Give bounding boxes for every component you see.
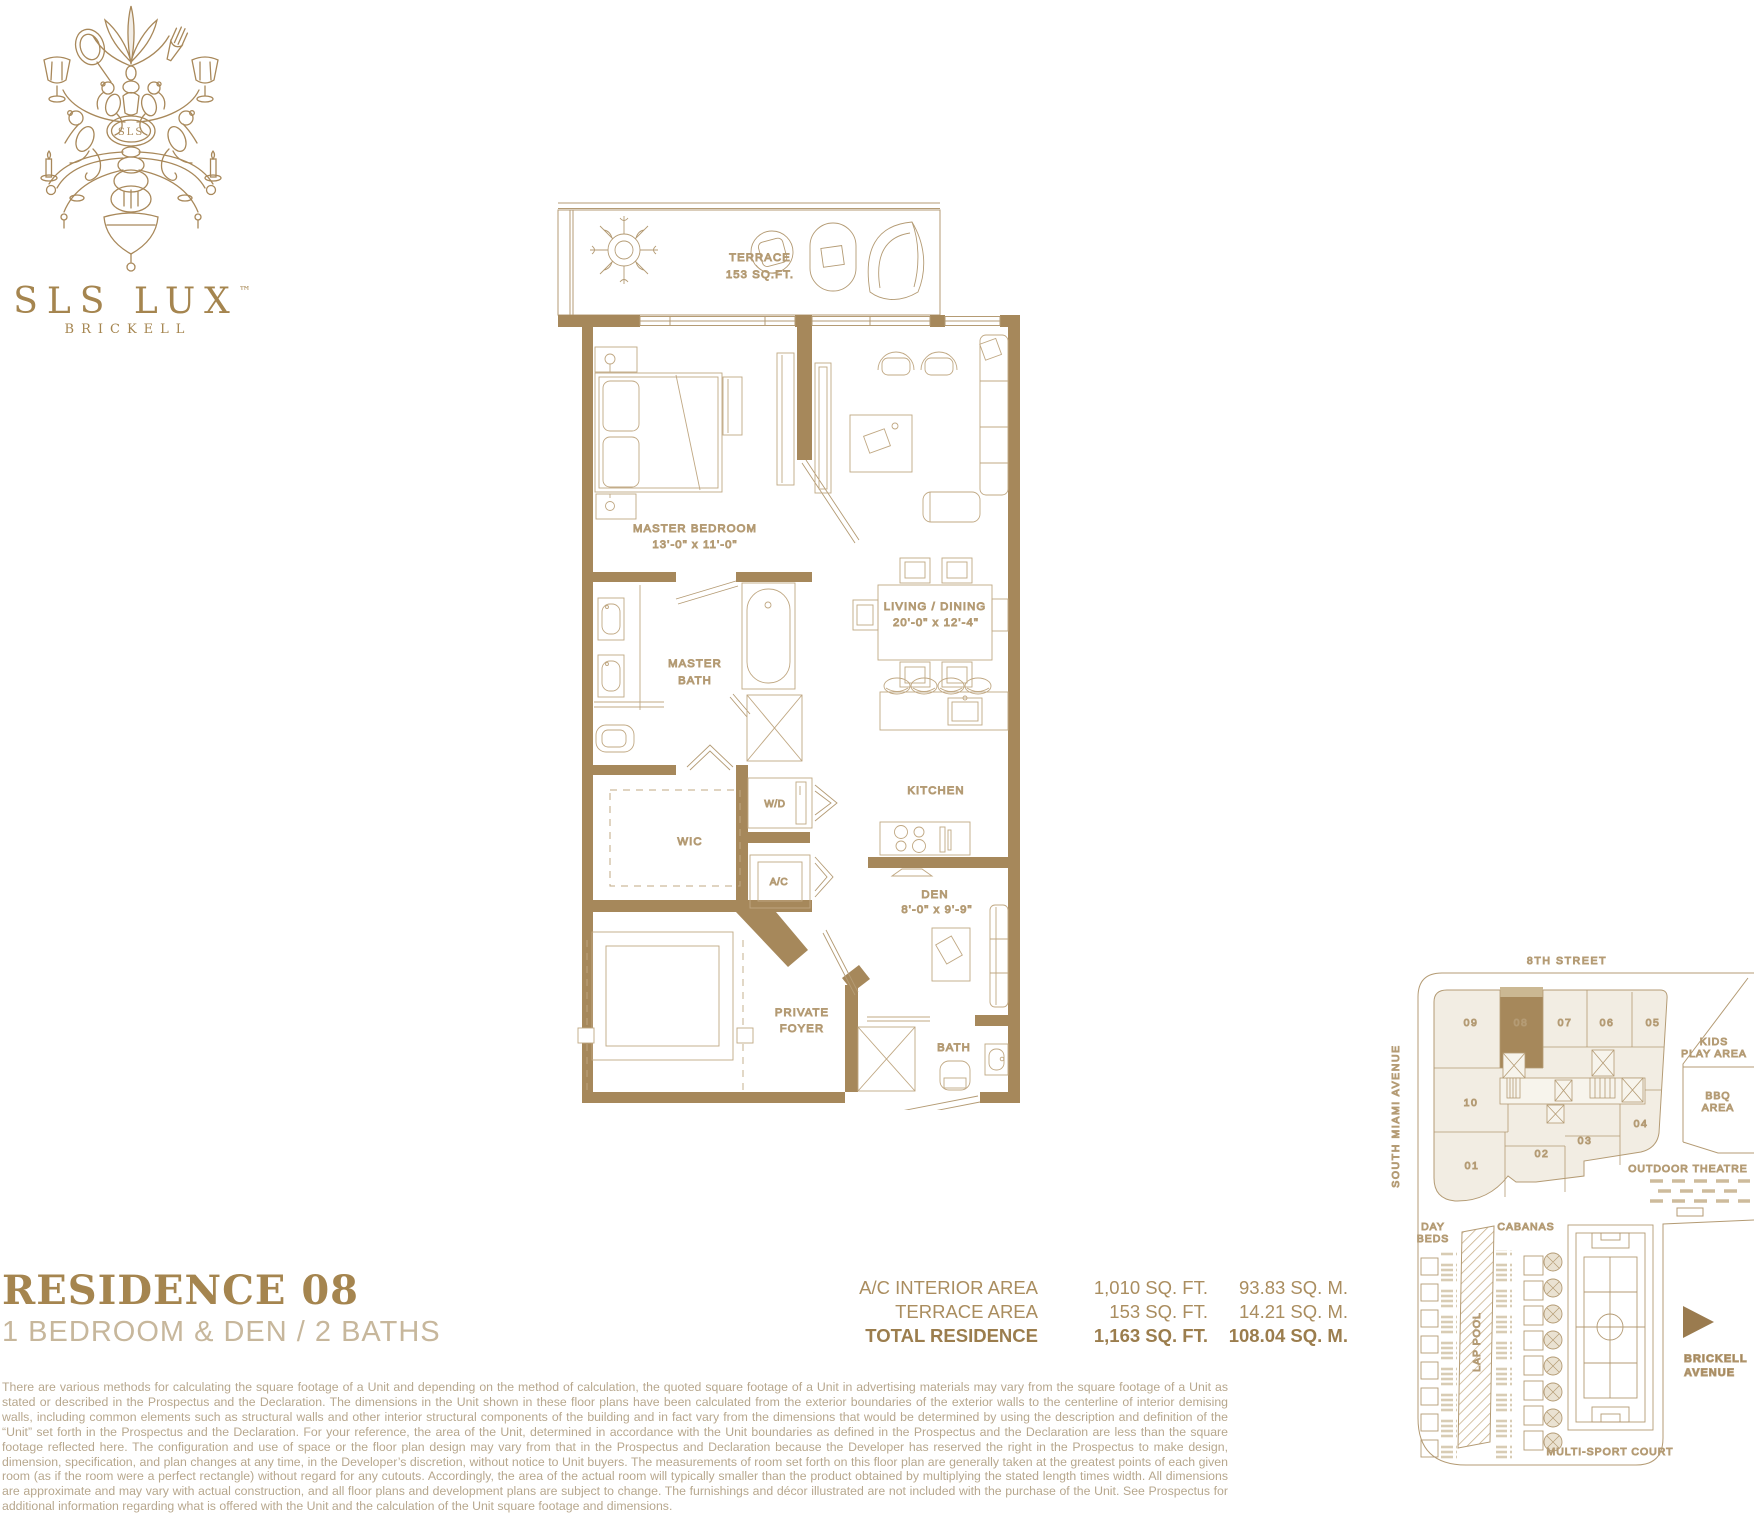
brand-wordmark: SLS LUX™ [6, 281, 258, 322]
living-dining-label: LIVING / DINING [884, 601, 987, 613]
day-beds-label2: BEDS [1417, 1233, 1450, 1245]
den-sofa-icon [990, 905, 1008, 1007]
terrace-medallion-icon [590, 216, 658, 284]
lap-pool: LAP POOL [1458, 1226, 1494, 1448]
dining-chair-icon [992, 599, 1008, 631]
outdoor-theatre-label: OUTDOOR THEATRE [1628, 1163, 1748, 1175]
windows [640, 317, 1000, 326]
key-plan-svg: 09 08 07 06 05 10 01 02 03 04 8TH STREET… [1240, 950, 1754, 1472]
master-bedroom-dims: 13'-0" x 11'-0" [652, 539, 737, 551]
den-furniture [932, 905, 1008, 1007]
bbq-label: BBQ [1705, 1090, 1730, 1102]
coffee-table-icon [850, 415, 912, 472]
residence-subtitle: 1 BEDROOM & DEN / 2 BATHS [2, 1318, 441, 1347]
residence-title: RESIDENCE 08 [2, 1271, 359, 1311]
logo-fork-icon [163, 25, 188, 62]
brand-city: BRICKELL [6, 322, 250, 337]
kids-play-label: KIDS [1700, 1036, 1729, 1048]
unit-label-10: 10 [1464, 1097, 1479, 1109]
arrow-right-icon [1683, 1306, 1714, 1338]
wd-label: W/D [764, 799, 785, 810]
wic-door-icon [687, 745, 733, 770]
ac-label: A/C [770, 877, 788, 888]
day-beds-icons [1421, 1252, 1457, 1460]
master-bath-label: MASTER [668, 658, 722, 670]
unit-label-04: 04 [1634, 1118, 1649, 1130]
cabana-stripes [1496, 1250, 1512, 1460]
living-dining-dims: 20'-0" x 12'-4" [893, 617, 979, 629]
unit-label-06: 06 [1600, 1017, 1615, 1029]
wd-door-icon [815, 785, 837, 821]
logo-stem [104, 66, 158, 271]
cabanas-label: CABANAS [1497, 1221, 1554, 1233]
terrace-table-icon [810, 223, 856, 291]
cabanas-icons [1496, 1250, 1562, 1460]
terrace-label: TERRACE [729, 252, 791, 264]
master-bath-fixtures [594, 583, 802, 761]
unit-label-01: 01 [1465, 1160, 1480, 1172]
area-total-sqft: 1,163 SQ. FT. [1038, 1326, 1208, 1350]
area-row-sqm: 14.21 SQ. M. [1208, 1302, 1348, 1326]
area-row-sqft: 153 SQ. FT. [1038, 1302, 1208, 1326]
page-root: { "colors": { "wall_gold": "#A6885B", "l… [0, 0, 1754, 1472]
ac-door-icon [815, 857, 833, 897]
private-foyer-label2: FOYER [780, 1023, 824, 1035]
kids-play-label2: PLAY AREA [1681, 1048, 1747, 1060]
area-row-sqft: 1,010 SQ. FT. [1038, 1278, 1208, 1302]
logo-mirror-icon [71, 26, 111, 82]
unit-label-03: 03 [1578, 1135, 1593, 1147]
area-row-label: A/C INTERIOR AREA [770, 1278, 1038, 1302]
terrace-area-label: 153 SQ.FT. [726, 269, 794, 281]
area-total-sqm: 108.04 SQ. M. [1208, 1326, 1348, 1350]
theatre-seating-icon [1650, 1181, 1750, 1201]
multi-sport-court-label: MULTI-SPORT COURT [1546, 1446, 1673, 1458]
toilet-icon [940, 1061, 970, 1090]
bath2-fixtures [858, 1017, 1008, 1091]
living-furniture [815, 335, 1008, 687]
kitchen-label: KITCHEN [907, 785, 964, 797]
brickell-label2: AVENUE [1684, 1367, 1735, 1379]
nightstand-icon [596, 494, 636, 519]
street-miami-label: SOUTH MIAMI AVENUE [1390, 1044, 1402, 1188]
lap-pool-label: LAP POOL [1471, 1312, 1483, 1372]
bedroom-door-icon [802, 460, 859, 543]
wardrobe-icon [777, 353, 794, 485]
walls [558, 315, 1020, 1103]
logo-monkey-icon [65, 111, 101, 181]
master-bedroom-label: MASTER BEDROOM [633, 523, 757, 535]
kitchen-fixtures [880, 678, 1008, 876]
stove-icon [880, 822, 970, 855]
street-8th-label: 8TH STREET [1527, 955, 1607, 967]
unit-label-08: 08 [1514, 1017, 1529, 1029]
logo-finial [93, 6, 169, 66]
unit-label-05: 05 [1646, 1017, 1661, 1029]
wic-closet-outline [610, 790, 740, 886]
bath-door-icon [676, 581, 738, 604]
theatre-stage-icon [1677, 1208, 1703, 1216]
floor-plan-svg: TERRACE 153 SQ.FT. [550, 195, 1030, 1110]
terrace: TERRACE 153 SQ.FT. [558, 203, 940, 315]
armchair-icon [921, 352, 957, 370]
den-label: DEN [921, 889, 948, 901]
bbq-label2: AREA [1702, 1102, 1735, 1114]
dresser-icon [723, 377, 742, 435]
master-bath-label2: BATH [678, 675, 712, 687]
area-total-label: TOTAL RESIDENCE [770, 1326, 1038, 1350]
brickell-avenue: BRICKELL AVENUE [1683, 1306, 1748, 1379]
nightstand-icon [595, 347, 637, 372]
bed-icon [595, 373, 722, 492]
wic-label: WIC [677, 836, 702, 848]
area-table: A/C INTERIOR AREA 1,010 SQ. FT. 93.83 SQ… [770, 1278, 1348, 1350]
area-row-label: TERRACE AREA [770, 1302, 1038, 1326]
unit-label-09: 09 [1464, 1017, 1479, 1029]
unit-label-07: 07 [1558, 1017, 1573, 1029]
kitchen-island-icon [880, 692, 1008, 730]
legal-disclaimer: There are various methods for calculatin… [2, 1380, 1228, 1514]
armchair-icon [878, 352, 914, 370]
private-foyer-label: PRIVATE [775, 1007, 829, 1019]
unit-label-02: 02 [1535, 1148, 1550, 1160]
multi-sport-court-icon [1568, 1225, 1653, 1430]
trademark-symbol: ™ [239, 284, 251, 298]
tree-icons [1544, 1253, 1562, 1451]
brickell-label: BRICKELL [1684, 1353, 1748, 1365]
entry-door-icon [850, 1096, 980, 1110]
area-row-sqm: 93.83 SQ. M. [1208, 1278, 1348, 1302]
elevator-shaft [578, 932, 753, 1090]
chandelier-logo-icon: SLS [0, 0, 262, 272]
master-bedroom-furniture [595, 347, 794, 519]
day-beds-label: DAY [1421, 1221, 1445, 1233]
lounger-stripes [1441, 1252, 1457, 1460]
sofa-icon [980, 335, 1008, 495]
bath-label: BATH [937, 1042, 971, 1054]
terrace-chaise-icon [868, 222, 924, 300]
logo-left-arms [41, 57, 125, 228]
unit-08-balcony [1500, 987, 1543, 997]
den-dims: 8'-0" x 9'-9" [901, 904, 972, 916]
tv-console-icon [815, 363, 831, 493]
